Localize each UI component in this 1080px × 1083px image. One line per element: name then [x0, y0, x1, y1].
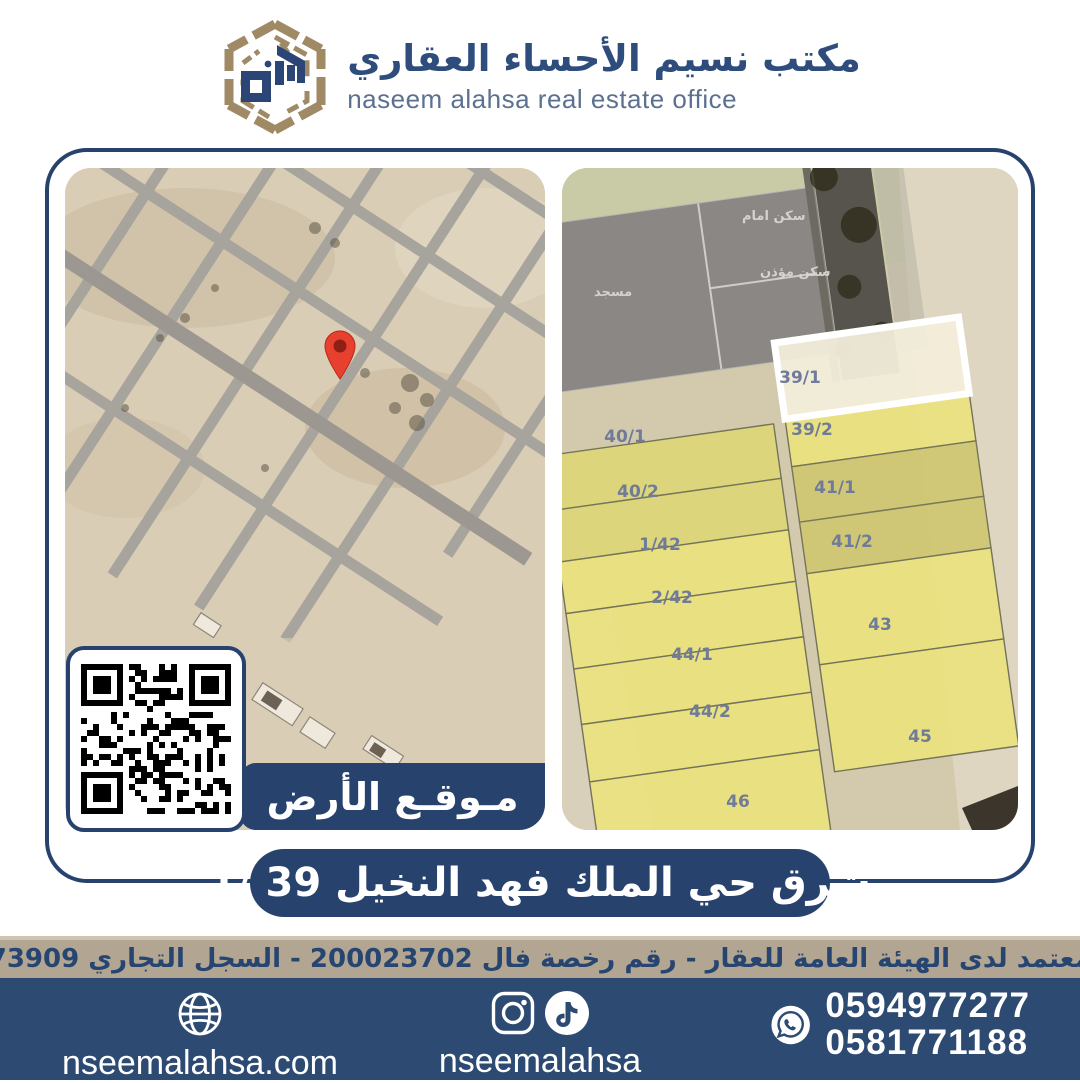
listing-title-banner: شرق حي الملك فهد النخيل 39 /1 [250, 849, 830, 917]
parcel-label-41-2: 41/2 [831, 532, 873, 552]
globe-icon[interactable] [176, 990, 224, 1038]
tiktok-icon[interactable] [544, 990, 590, 1036]
brand-logo-icon [219, 17, 331, 137]
parcel-label-43: 43 [868, 615, 892, 635]
brand-subtitle-english: naseem alahsa real estate office [347, 84, 737, 115]
parcel-label-39-2: 39/2 [791, 420, 833, 440]
area-label: مسجد [594, 285, 632, 300]
parcel-label-2-42: 2/42 [651, 588, 693, 608]
qr-code-image [81, 664, 231, 814]
area-label: سكن امام [742, 209, 805, 224]
qr-code[interactable] [66, 646, 246, 832]
parcel-plan-map: 40/140/21/422/4244/144/24639/241/141/243… [562, 168, 1018, 830]
phone-number-1[interactable]: 0594977277 [825, 988, 1030, 1025]
whatsapp-icon[interactable] [770, 996, 811, 1054]
footer-social-group[interactable]: nseemalahsa [430, 990, 650, 1081]
parcel-label-39-1: 39/1 [779, 368, 821, 388]
website-url[interactable]: nseemalahsa.com [62, 1044, 338, 1083]
license-bar: مسوق معتمد لدى الهيئة العامة للعقار - رق… [0, 936, 1080, 978]
footer: nseemalahsa.com nseemalahsa 0594977277 0… [0, 978, 1080, 1080]
parcel-label-45: 45 [908, 727, 932, 747]
parcel-label-40-2: 40/2 [617, 482, 659, 502]
parcel-label-46: 46 [726, 792, 750, 812]
parcel-label-41-1: 41/1 [814, 478, 856, 498]
parcel-label-44-2: 44/2 [689, 702, 731, 722]
parcel-label-44-1: 44/1 [671, 645, 713, 665]
parcel-label-40-1: 40/1 [604, 427, 646, 447]
parcel-label-1-42: 1/42 [639, 535, 681, 555]
social-handle[interactable]: nseemalahsa [439, 1042, 641, 1081]
parcel-map-image: 40/140/21/422/4244/144/24639/241/141/243… [562, 168, 1018, 830]
footer-phone-group[interactable]: 0594977277 0581771188 [770, 988, 1030, 1062]
location-banner-label: مـوقـع الأرض [267, 775, 519, 819]
license-text: مسوق معتمد لدى الهيئة العامة للعقار - رق… [0, 944, 1080, 974]
header: مكتب نسيم الأحساء العقاري naseem alahsa … [0, 12, 1080, 142]
brand-title-arabic: مكتب نسيم الأحساء العقاري [347, 39, 861, 80]
footer-website-group[interactable]: nseemalahsa.com [60, 990, 340, 1083]
phone-number-2[interactable]: 0581771188 [825, 1025, 1030, 1062]
location-banner: مـوقـع الأرض [240, 763, 545, 830]
instagram-icon[interactable] [490, 990, 536, 1036]
area-label: سكن مؤذن [760, 265, 831, 280]
listing-title-text: شرق حي الملك فهد النخيل 39 /1 [209, 860, 871, 906]
